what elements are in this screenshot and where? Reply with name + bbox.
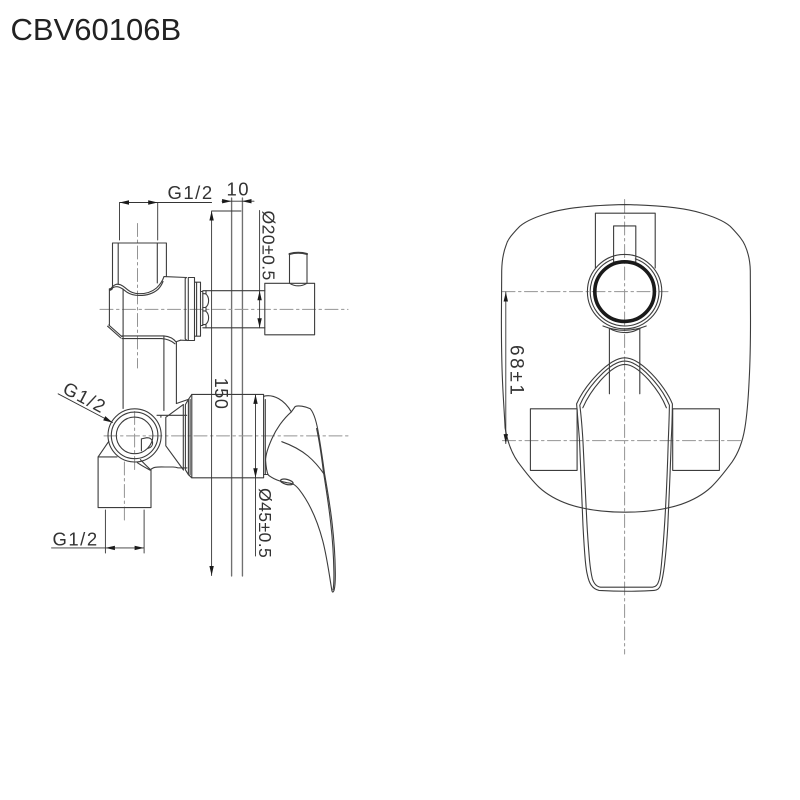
svg-text:10: 10: [227, 179, 251, 200]
svg-text:G1/2: G1/2: [60, 377, 111, 417]
svg-text:68±1: 68±1: [506, 345, 527, 398]
svg-text:Ø45±0.5: Ø45±0.5: [255, 488, 275, 558]
svg-text:150: 150: [211, 378, 231, 410]
svg-text:G1/2: G1/2: [53, 529, 99, 550]
svg-text:Ø20±0.5: Ø20±0.5: [259, 211, 279, 281]
svg-text:CBV60106B: CBV60106B: [11, 12, 182, 47]
svg-text:G1/2: G1/2: [168, 182, 214, 203]
